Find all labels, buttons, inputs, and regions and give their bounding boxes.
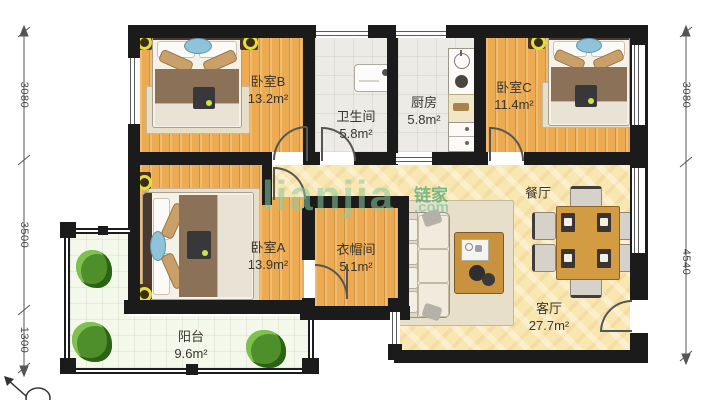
balcony-post — [60, 222, 76, 238]
dim-left-3500: 3500 — [18, 222, 30, 248]
window — [632, 168, 645, 253]
coffee-table-icon — [454, 232, 504, 294]
watermark-com: .com — [414, 199, 449, 216]
bed-icon — [152, 30, 242, 128]
floor-plan-canvas: 卧室B 13.2m² 卫生间 5.8m² 厨房 5.8m² 卧室C 11.4m²… — [0, 0, 710, 400]
north-arrow-icon — [0, 372, 60, 400]
window — [632, 45, 645, 125]
entry-door-opening — [630, 300, 648, 333]
kitchen-threshold — [396, 153, 434, 164]
wall — [524, 152, 630, 165]
dim-left-3080: 3080 — [18, 82, 30, 108]
window — [396, 25, 446, 38]
balcony-post — [302, 306, 319, 320]
wall — [474, 38, 486, 152]
wall — [354, 152, 398, 165]
dim-right-4540: 4540 — [680, 249, 692, 275]
kitchen-counter-icon — [448, 46, 474, 150]
balcony-post — [186, 364, 198, 375]
label-bedroom-c: 卧室C 11.4m² — [494, 80, 534, 114]
chair-icon — [532, 212, 556, 240]
label-bedroom-b: 卧室B 13.2m² — [248, 74, 288, 108]
bed-icon — [142, 192, 254, 300]
label-kitchen: 厨房 5.8m² — [407, 95, 440, 129]
stove-icon — [455, 75, 468, 88]
sofa-icon — [402, 212, 450, 318]
dim-right-3080: 3080 — [680, 82, 692, 108]
sink-icon — [448, 48, 476, 96]
wall — [124, 300, 312, 314]
balcony-post — [302, 358, 319, 374]
window — [316, 25, 368, 38]
window — [390, 312, 400, 346]
window — [128, 58, 140, 124]
label-dining: 餐厅 — [525, 186, 551, 203]
wall — [128, 25, 648, 38]
label-balcony: 阳台 9.6m² — [174, 329, 207, 363]
wall — [432, 152, 488, 165]
watermark-latin: lianjia — [262, 172, 395, 220]
dim-left-1300: 1300 — [18, 327, 30, 353]
right-dimension-lines — [672, 24, 706, 369]
balcony-rail — [64, 228, 70, 374]
wall — [387, 38, 398, 152]
chair-icon — [532, 244, 556, 272]
balcony-post — [98, 226, 108, 235]
wall — [394, 350, 648, 363]
chair-icon — [570, 186, 602, 208]
wall — [128, 152, 272, 165]
label-cloakroom: 衣帽间 5.1m² — [336, 242, 375, 276]
balcony-post — [60, 358, 76, 374]
label-bathroom: 卫生间 5.8m² — [336, 109, 375, 143]
label-bedroom-a: 卧室A 13.9m² — [248, 240, 288, 274]
bed-icon — [548, 30, 630, 126]
label-living: 客厅 27.7m² — [529, 301, 569, 335]
